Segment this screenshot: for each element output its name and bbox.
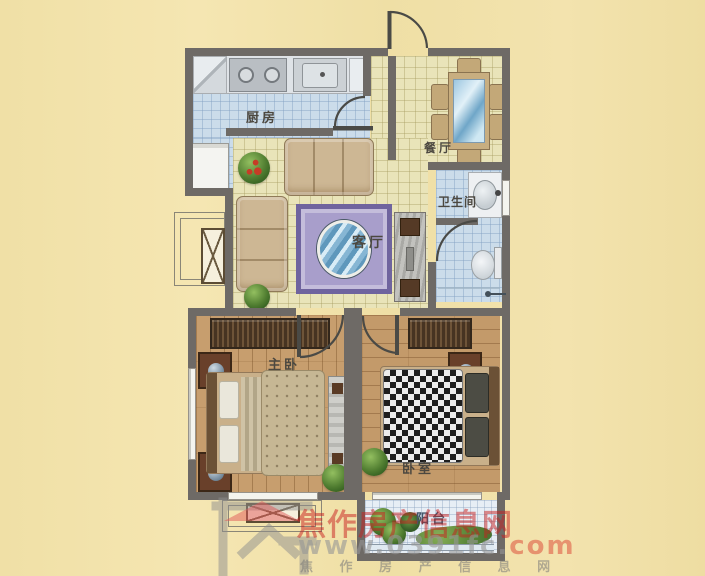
shower-head	[485, 291, 491, 297]
bathroom-label: 卫生间	[438, 193, 477, 210]
bedroom-door-arc	[363, 316, 397, 353]
dining-label: 餐厅	[424, 139, 454, 156]
floor-plan: 厨房 餐厅 客厅 卫生间 主卧 卧室 阳台 焦作房产信息网 www.0391fc…	[0, 0, 705, 576]
bedroom-door-leaf	[395, 315, 399, 355]
master-door-leaf	[297, 315, 301, 357]
master-bedroom-label: 主卧	[268, 354, 300, 373]
kitchen-door-arc	[335, 97, 365, 127]
door-swing-overlay	[0, 0, 705, 576]
watermark-tagline: 焦 作 房 产 信 息 网	[300, 556, 561, 575]
living-label: 客厅	[352, 232, 386, 252]
bedroom-label: 卧室	[402, 458, 434, 477]
kitchen-door-leaf	[333, 126, 373, 131]
entry-door-leaf	[388, 11, 392, 49]
master-door-arc	[300, 315, 343, 357]
kitchen-label: 厨房	[246, 107, 278, 126]
bathroom-door-arc	[437, 221, 477, 261]
entry-door-arc	[390, 12, 427, 48]
